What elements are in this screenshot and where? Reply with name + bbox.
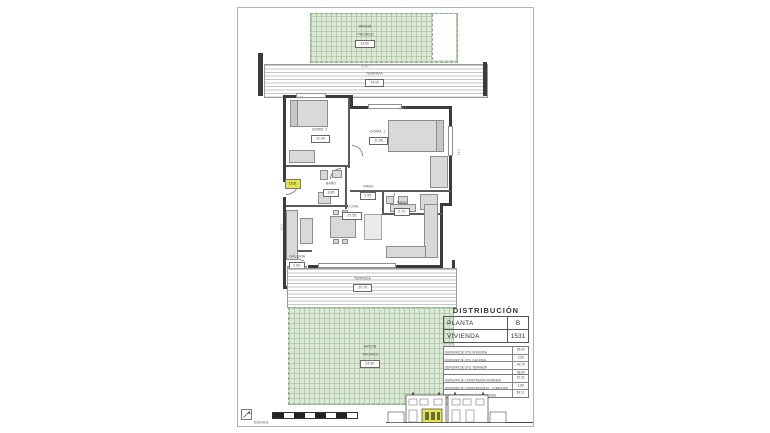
pillow-dorm1 (436, 120, 444, 152)
dimension: 5.00 (358, 55, 372, 73)
distribucion-title: DISTRIBUCIÓN (443, 306, 529, 315)
chair (342, 239, 348, 244)
partition-dorm2-dorm1 (348, 98, 350, 168)
bottom-garden-label: JARDIN PRIVADO 24.50 (345, 343, 395, 368)
dorm2-label: DORM. 2 11.40 (305, 126, 335, 143)
table-row: SUPERFICIE ÚTIL VIVIENDA 59.20 (444, 347, 528, 354)
room-name: JARDIN (358, 25, 371, 29)
scale-bar (272, 412, 358, 419)
planta-label: PLANTA (444, 320, 507, 327)
dimension: 2.41 (451, 140, 465, 158)
top-garden-label: JARDIN PRIVADO 13.50 (340, 23, 390, 48)
planta-vivienda-table: PLANTA B VIVIENDA 1531 (443, 316, 529, 343)
room-name-2: PRIVADO (357, 33, 373, 37)
table-row: SUPERFICIE CONSTRUIDA EL. COMUNES 1.80 (444, 382, 528, 390)
aseo-label: ASEO 2.70 (392, 199, 412, 216)
wall-terrace-right-pillar (483, 62, 487, 96)
area-box: 14.00 (365, 79, 385, 87)
vivienda-value: 1531 (507, 330, 528, 342)
table-row: VIVIENDA 1531 (444, 329, 528, 342)
bano-label: BAÑO 3.85 (320, 180, 342, 197)
kitchen-island (300, 218, 313, 244)
partition-aseo-left (382, 190, 384, 215)
rug (364, 214, 382, 240)
floor-plan-sheet: JARDIN PRIVADO 13.50 TERRAZA 14.00 (0, 0, 770, 433)
salon-label: S.COM. 27.55 (338, 203, 366, 220)
sofa-horizontal (386, 246, 426, 258)
dorm1-label: DORM. 1 11.90 (363, 128, 393, 145)
wardrobe-dorm2 (289, 150, 315, 163)
paso-label: PASO 3.95 (358, 183, 378, 200)
table-row: SUPERFICIE ÚTIL GALERIA 2.60 (444, 354, 528, 362)
dimension: 3.01 (274, 215, 288, 233)
dimension: 1.40 (293, 86, 307, 104)
bottom-terrace-label: TERRAZA 29.70 (340, 275, 385, 292)
superficie-util-table: SUPERFICIE ÚTIL VIVIENDA 59.20 SUPERFICI… (443, 346, 529, 377)
wardrobe-dorm1 (430, 156, 448, 188)
chair (333, 239, 339, 244)
planta-value: B (507, 317, 528, 329)
pillow-dorm2 (290, 100, 298, 127)
area-box: 13.50 (355, 40, 375, 48)
sink-bano (332, 170, 342, 178)
wall-terrace-left-pillar (258, 53, 263, 96)
dimension: 2.47 (396, 97, 410, 115)
unit-number-badge: 1531 (285, 179, 301, 189)
table-row: SUPERFICIE CONSTRUIDA VIVIENDA 67.31 (444, 375, 528, 382)
top-garden-open-strip (432, 14, 456, 60)
north-arrow-icon (241, 409, 252, 420)
toilet-bano (320, 170, 328, 180)
building-elevation (386, 390, 533, 425)
table-row: PLANTA B (444, 317, 528, 329)
vivienda-label: VIVIENDA (444, 333, 507, 340)
table-row: SUPERFICIE ÚTIL TERRAZA 43.70 (444, 361, 528, 369)
sofa-vertical (424, 204, 438, 258)
partition-dorm2-bath (286, 165, 350, 167)
